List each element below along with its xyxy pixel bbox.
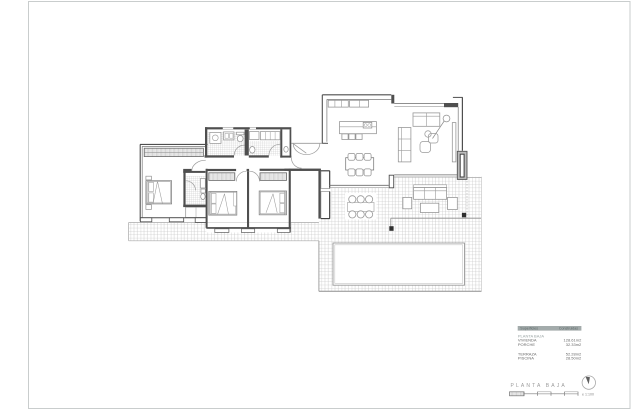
svg-text:PISCINA: PISCINA xyxy=(518,356,534,361)
svg-text:Construidas: Construidas xyxy=(559,327,578,331)
svg-text:Superficies: Superficies xyxy=(520,327,538,331)
svg-text:e 1:100: e 1:100 xyxy=(582,393,594,397)
svg-text:PLANTA BAJA: PLANTA BAJA xyxy=(511,383,567,389)
svg-text:32.33m2: 32.33m2 xyxy=(566,342,582,347)
svg-text:28.50m2: 28.50m2 xyxy=(566,356,582,361)
svg-text:PORCHE: PORCHE xyxy=(518,342,535,347)
